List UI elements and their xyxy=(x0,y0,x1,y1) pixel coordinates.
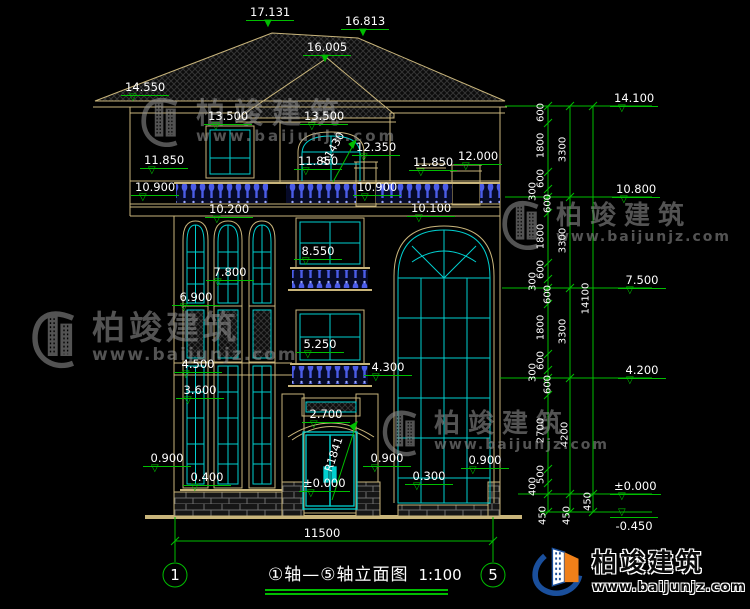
chain-dim: 4200 xyxy=(560,413,571,457)
elevation-value: 16.813 xyxy=(345,14,385,28)
elevation-triangle-icon: ▼ xyxy=(321,54,329,64)
elevation-marker: 14.100▽ xyxy=(610,92,658,107)
elevation-marker: 11.850▽ xyxy=(409,156,457,171)
elevation-triangle-icon: ▽ xyxy=(308,122,316,132)
elevation-marker: 8.550▽ xyxy=(294,245,342,260)
elevation-triangle-icon: ▽ xyxy=(469,466,477,476)
elevation-triangle-icon: ▽ xyxy=(307,489,315,499)
drawing-scale: 1:100 xyxy=(418,566,461,584)
elevation-marker: 3.600▽ xyxy=(176,384,224,399)
elevation-marker: 13.500▽ xyxy=(204,110,252,125)
elevation-marker: 14.550▽ xyxy=(121,81,169,96)
chain-dim: 3300 xyxy=(558,219,569,263)
chain-dim: 3300 xyxy=(558,128,569,172)
elevation-marker: 12.350▽ xyxy=(352,141,400,156)
chain-dim: 450 xyxy=(562,494,573,538)
watermark-brand: 柏竣建筑 xyxy=(92,311,298,346)
elevation-triangle-icon: ▽ xyxy=(361,193,369,203)
elevation-triangle-icon: ▽ xyxy=(618,104,626,114)
chain-dim: 300 xyxy=(528,351,539,395)
elevation-triangle-icon: ▽ xyxy=(213,215,221,225)
elevation-triangle-icon: ▽ xyxy=(372,373,380,383)
elevation-marker: 10.100▽ xyxy=(407,202,455,217)
elevation-marker: 16.813▼ xyxy=(341,15,389,30)
elevation-triangle-icon: ▽ xyxy=(302,257,310,267)
elevation-marker: 6.900▽ xyxy=(172,291,220,306)
watermark-logo-icon xyxy=(28,298,82,378)
elevation-triangle-icon: ▼ xyxy=(359,28,367,38)
elevation-triangle-icon: ▽ xyxy=(182,370,190,380)
watermark-url: www.baijunjz.com xyxy=(434,438,609,453)
watermark-brand: 柏竣建筑 xyxy=(434,411,609,438)
elevation-triangle-icon: ▽ xyxy=(626,286,634,296)
elevation-marker: 7.500▽ xyxy=(618,274,666,289)
elevation-triangle-icon: ▽ xyxy=(415,214,423,224)
elevation-marker: 13.500▽ xyxy=(300,110,348,125)
brand-logo-url: www.baijunjz.com xyxy=(592,579,746,595)
elevation-triangle-icon: ▽ xyxy=(360,153,368,163)
elevation-marker: ±0.000▽ xyxy=(610,480,661,495)
elevation-triangle-icon: ▽ xyxy=(151,464,159,474)
elevation-triangle-icon: ▼ xyxy=(264,19,272,29)
elevation-value: 17.131 xyxy=(250,5,290,19)
elevation-marker: 10.900▽ xyxy=(353,181,401,196)
elevation-triangle-icon: ▽ xyxy=(618,492,626,502)
elevation-marker: 4.500▽ xyxy=(174,358,222,373)
elevation-marker: 4.300▽ xyxy=(364,361,412,376)
elevation-triangle-icon: ▽ xyxy=(302,167,310,177)
elevation-marker: 17.131▼ xyxy=(246,6,294,21)
elevation-marker: 4.200▽ xyxy=(618,364,666,379)
brand-logo-text: 柏竣建筑 xyxy=(592,543,746,579)
watermark-logo-icon xyxy=(136,93,186,149)
elevation-value: 16.005 xyxy=(307,40,347,54)
elevation-triangle-icon: ▽ xyxy=(214,278,222,288)
elevation-marker: 0.300▽ xyxy=(405,470,453,485)
brand-logo: 柏竣建筑 www.baijunjz.com xyxy=(530,541,746,597)
elevation-marker: ±0.000▽ xyxy=(299,477,350,492)
watermark: 柏竣建筑 www.baijunjz.com xyxy=(378,406,609,458)
drawing-title: ①轴—⑤轴立面图 1:100 xyxy=(268,560,462,585)
elevation-value: -0.450 xyxy=(615,519,652,533)
elevation-marker: 16.005▼ xyxy=(303,41,351,56)
chain-dim: 2700 xyxy=(536,409,547,453)
chain-dim: 450 xyxy=(583,480,594,524)
watermark-url: www.baijunjz.com xyxy=(556,230,731,245)
span-dimension: 11500 xyxy=(292,526,352,540)
chain-dim: 300 xyxy=(528,260,539,304)
elevation-marker: 10.800▽ xyxy=(612,183,660,198)
elevation-triangle-icon: ▽ xyxy=(148,166,156,176)
watermark: 柏竣建筑 www.baijunjz.com xyxy=(28,298,298,378)
chain-dim: 14100 xyxy=(581,277,592,321)
elevation-triangle-icon: ▽ xyxy=(620,195,628,205)
elevation-triangle-icon: ▽ xyxy=(462,162,470,172)
elevation-marker: 0.900▽ xyxy=(143,452,191,467)
elevation-triangle-icon: ▽ xyxy=(310,420,318,430)
elevation-triangle-icon: ▽ xyxy=(371,464,379,474)
elevation-marker: 11.850▽ xyxy=(140,154,188,169)
elevation-triangle-icon: ▽ xyxy=(618,508,626,518)
axis-bubble-left: 1 xyxy=(170,566,180,584)
elevation-triangle-icon: ▽ xyxy=(184,396,192,406)
elevation-marker: 0.400▽ xyxy=(183,471,231,486)
chain-dim: 3300 xyxy=(558,310,569,354)
elevation-marker: 7.800▽ xyxy=(206,266,254,281)
elevation-triangle-icon: ▽ xyxy=(129,93,137,103)
elevation-marker: 10.900▽ xyxy=(131,181,179,196)
elevation-triangle-icon: ▽ xyxy=(626,376,634,386)
elevation-triangle-icon: ▽ xyxy=(139,193,147,203)
elevation-triangle-icon: ▽ xyxy=(413,482,421,492)
elevation-marker: 5.250▽ xyxy=(296,338,344,353)
elevation-triangle-icon: ▽ xyxy=(212,122,220,132)
elevation-marker: 12.000▽ xyxy=(454,150,502,165)
drawing-title-text: ①轴—⑤轴立面图 xyxy=(268,560,408,585)
watermark-brand: 柏竣建筑 xyxy=(556,203,731,230)
axis-bubble-right: 5 xyxy=(488,566,498,584)
chain-dim: 450 xyxy=(538,494,549,538)
elevation-triangle-icon: ▽ xyxy=(417,168,425,178)
elevation-triangle-icon: ▽ xyxy=(191,483,199,493)
chain-dim: 600 xyxy=(543,363,554,407)
elevation-marker: 0.900▽ xyxy=(363,452,411,467)
elevation-marker: 0.900▽ xyxy=(461,454,509,469)
elevation-triangle-icon: ▽ xyxy=(304,350,312,360)
brand-logo-icon xyxy=(530,541,586,597)
chain-dim: 300 xyxy=(528,170,539,214)
elevation-marker: 10.200▽ xyxy=(205,203,253,218)
elevation-marker: 2.700▽ xyxy=(302,408,350,423)
elevation-triangle-icon: ▽ xyxy=(180,303,188,313)
elevation-marker: -0.450▽ xyxy=(610,517,658,534)
